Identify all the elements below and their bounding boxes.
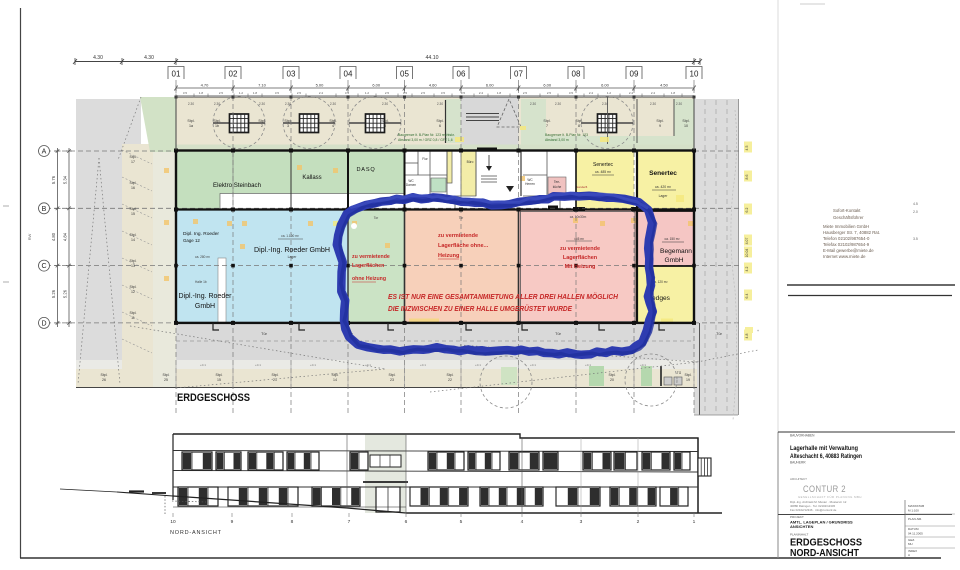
svg-text:1.2: 1.2 bbox=[239, 91, 244, 95]
svg-text:NORD-ANSICHT: NORD-ANSICHT bbox=[170, 530, 222, 536]
svg-text:+: + bbox=[757, 329, 759, 333]
svg-text:Lagerfläche ohne...: Lagerfläche ohne... bbox=[438, 243, 489, 249]
svg-text:03: 03 bbox=[287, 70, 296, 79]
svg-text:ca. 10x30m: ca. 10x30m bbox=[570, 215, 587, 219]
svg-text:Dipl.-Ing. Roeder GmbH: Dipl.-Ing. Roeder GmbH bbox=[254, 247, 330, 254]
svg-text:küche: küche bbox=[553, 185, 562, 189]
svg-text:2.30: 2.30 bbox=[330, 102, 336, 106]
svg-text:Begemann: Begemann bbox=[660, 248, 692, 255]
svg-text:Damen: Damen bbox=[406, 183, 417, 187]
svg-text:Stpl.: Stpl. bbox=[388, 373, 395, 377]
svg-text:TG: TG bbox=[677, 371, 682, 375]
svg-text:6: 6 bbox=[439, 124, 441, 128]
svg-text:4.30: 4.30 bbox=[93, 55, 103, 61]
svg-text:5: 5 bbox=[384, 124, 386, 128]
svg-text:26: 26 bbox=[102, 378, 106, 382]
svg-text:Senertec: Senertec bbox=[649, 170, 677, 177]
svg-text:BAUVORHABEN: BAUVORHABEN bbox=[790, 434, 815, 438]
svg-text:2.4: 2.4 bbox=[589, 91, 594, 95]
svg-text:10: 10 bbox=[170, 519, 176, 525]
svg-text:Stpl.: Stpl. bbox=[129, 233, 136, 237]
svg-text:ARCHITEKT: ARCHITEKT bbox=[790, 477, 807, 481]
svg-text:Lagerhalle mit Verwaltung: Lagerhalle mit Verwaltung bbox=[790, 445, 858, 452]
svg-text:7: 7 bbox=[546, 124, 548, 128]
svg-text:4.84: 4.84 bbox=[63, 232, 68, 241]
svg-text:BAUHERR: BAUHERR bbox=[790, 461, 806, 465]
svg-text:9: 9 bbox=[659, 124, 661, 128]
svg-text:5.26: 5.26 bbox=[51, 289, 56, 298]
svg-text:1b: 1b bbox=[215, 124, 219, 128]
svg-text:Senertec: Senertec bbox=[593, 162, 614, 168]
svg-text:Büro: Büro bbox=[467, 160, 474, 164]
svg-text:04.11.2005: 04.11.2005 bbox=[908, 532, 923, 536]
svg-text:C: C bbox=[41, 263, 46, 270]
svg-text:16: 16 bbox=[131, 186, 135, 190]
svg-text:Stpl.: Stpl. bbox=[129, 311, 136, 315]
svg-text:ES IST NUR EINE GESAMTANMIETUN: ES IST NUR EINE GESAMTANMIETUNG ALLER DR… bbox=[388, 292, 619, 301]
svg-text:Lager: Lager bbox=[288, 255, 298, 259]
svg-text:4.80: 4.80 bbox=[51, 232, 56, 241]
svg-text:Geschäftsführer: Geschäftsführer bbox=[833, 215, 864, 220]
svg-text:Tür: Tür bbox=[555, 332, 561, 336]
svg-text:Stpl.: Stpl. bbox=[129, 155, 136, 159]
svg-text:DASQ: DASQ bbox=[356, 167, 375, 173]
svg-text:+0.1: +0.1 bbox=[365, 363, 371, 367]
svg-text:6.4: 6.4 bbox=[745, 294, 749, 299]
svg-text:Stpl.: Stpl. bbox=[436, 119, 443, 123]
svg-text:GmbH: GmbH bbox=[195, 303, 215, 310]
svg-text:Telefax 02102/987654-9: Telefax 02102/987654-9 bbox=[823, 242, 870, 247]
svg-text:2.30: 2.30 bbox=[437, 102, 443, 106]
svg-text:A: A bbox=[908, 553, 910, 557]
svg-text:9: 9 bbox=[231, 519, 234, 525]
svg-text:3.5: 3.5 bbox=[441, 91, 446, 95]
svg-text:3.5: 3.5 bbox=[345, 91, 350, 95]
svg-text:2.30: 2.30 bbox=[650, 102, 656, 106]
svg-text:06: 06 bbox=[457, 70, 466, 79]
svg-text:3: 3 bbox=[287, 124, 289, 128]
svg-text:2.4: 2.4 bbox=[479, 91, 484, 95]
svg-text:5.00: 5.00 bbox=[316, 83, 325, 88]
svg-text:23: 23 bbox=[390, 378, 394, 382]
svg-text:5.34: 5.34 bbox=[63, 175, 68, 184]
svg-text:2.5: 2.5 bbox=[421, 91, 426, 95]
svg-text:6.00: 6.00 bbox=[543, 83, 552, 88]
svg-text:14: 14 bbox=[131, 238, 135, 242]
svg-text:2.0: 2.0 bbox=[913, 210, 918, 214]
svg-text:PLANINHALT: PLANINHALT bbox=[790, 533, 808, 537]
svg-text:Stpl.: Stpl. bbox=[187, 119, 194, 123]
svg-text:+0.1: +0.1 bbox=[255, 363, 261, 367]
svg-text:2.4: 2.4 bbox=[319, 91, 324, 95]
svg-text:8: 8 bbox=[291, 519, 294, 525]
svg-text:4: 4 bbox=[332, 124, 334, 128]
svg-text:Baugrenze lt. B-Plan Nr. 123 r: Baugrenze lt. B-Plan Nr. 123 rechtskr. bbox=[398, 133, 455, 137]
svg-text:6: 6 bbox=[405, 519, 408, 525]
svg-text:4.50: 4.50 bbox=[660, 83, 669, 88]
svg-text:+0.1: +0.1 bbox=[640, 363, 646, 367]
svg-text:ca. 420 m²: ca. 420 m² bbox=[655, 185, 672, 189]
svg-text:1.2: 1.2 bbox=[607, 91, 612, 95]
svg-text:3.5: 3.5 bbox=[913, 237, 918, 241]
svg-text:Stpl.: Stpl. bbox=[100, 373, 107, 377]
svg-text:GESELLSCHAFT FÜR PLANUNG MBH: GESELLSCHAFT FÜR PLANUNG MBH bbox=[798, 495, 862, 499]
svg-text:DATUM: DATUM bbox=[908, 527, 919, 531]
svg-text:Stpl.: Stpl. bbox=[129, 181, 136, 185]
svg-text:+0.1: +0.1 bbox=[530, 363, 536, 367]
svg-text:14: 14 bbox=[333, 378, 337, 382]
svg-text:5.26: 5.26 bbox=[63, 289, 68, 298]
svg-text:GmbH: GmbH bbox=[664, 257, 683, 264]
svg-text:Stpl.: Stpl. bbox=[682, 119, 689, 123]
svg-text:12: 12 bbox=[131, 290, 135, 294]
svg-text:2.4: 2.4 bbox=[651, 91, 656, 95]
svg-text:8.6: 8.6 bbox=[745, 175, 749, 180]
svg-text:3.5: 3.5 bbox=[183, 91, 188, 95]
svg-text:B: B bbox=[42, 206, 47, 213]
svg-text:1.2: 1.2 bbox=[365, 91, 370, 95]
svg-text:ERDGESCHOSS: ERDGESCHOSS bbox=[790, 538, 862, 549]
svg-text:Tür: Tür bbox=[716, 332, 722, 336]
svg-text:Flur: Flur bbox=[422, 157, 428, 161]
svg-text:Dipl.-Ing. Roeder: Dipl.-Ing. Roeder bbox=[179, 293, 233, 300]
svg-text:6.00: 6.00 bbox=[486, 83, 495, 88]
svg-text:E-Mail gewerbe@miete.de: E-Mail gewerbe@miete.de bbox=[823, 248, 874, 253]
svg-text:4.30: 4.30 bbox=[144, 55, 154, 61]
svg-text:6.00: 6.00 bbox=[372, 83, 381, 88]
svg-text:2.30: 2.30 bbox=[285, 102, 291, 106]
svg-text:PLAN-NR.: PLAN-NR. bbox=[908, 517, 922, 521]
svg-text:4: 4 bbox=[521, 519, 524, 525]
svg-text:1: 1 bbox=[693, 519, 696, 525]
svg-text:ca. 485 m²: ca. 485 m² bbox=[595, 170, 612, 174]
svg-text:17: 17 bbox=[131, 160, 135, 164]
svg-text:1a: 1a bbox=[189, 124, 193, 128]
svg-text:ERDGESCHOSS: ERDGESCHOSS bbox=[177, 392, 250, 404]
svg-text:ca. 280 m²: ca. 280 m² bbox=[195, 255, 210, 259]
svg-text:Stpl.: Stpl. bbox=[271, 373, 278, 377]
svg-text:1.8: 1.8 bbox=[253, 91, 258, 95]
svg-text:+0.1: +0.1 bbox=[585, 363, 591, 367]
svg-text:Stpl.: Stpl. bbox=[129, 285, 136, 289]
svg-text:Abstand 3,00 m / GRZ 0,8 / GFZ: Abstand 3,00 m / GRZ 0,8 / GFZ 1,6 bbox=[398, 138, 453, 142]
svg-text:2.5: 2.5 bbox=[547, 91, 552, 95]
svg-text:5: 5 bbox=[460, 519, 463, 525]
svg-text:15: 15 bbox=[131, 212, 135, 216]
svg-text:7: 7 bbox=[348, 519, 351, 525]
svg-text:Herren: Herren bbox=[525, 182, 535, 186]
svg-text:10.04: 10.04 bbox=[745, 249, 749, 258]
svg-text:4.5: 4.5 bbox=[913, 202, 918, 206]
svg-text:4.5: 4.5 bbox=[745, 146, 749, 151]
svg-text:ca. 1.100 m²: ca. 1.100 m² bbox=[281, 234, 299, 238]
svg-text:Stpl.: Stpl. bbox=[213, 119, 220, 123]
svg-text:Dipl. Ing. Roeder: Dipl. Ing. Roeder bbox=[183, 231, 219, 237]
svg-text:zu vermietende: zu vermietende bbox=[352, 254, 390, 260]
svg-text:Stpl.: Stpl. bbox=[215, 373, 222, 377]
svg-text:zu vermietende: zu vermietende bbox=[560, 246, 600, 252]
svg-text:Lagerflächen: Lagerflächen bbox=[563, 255, 598, 261]
svg-text:Tee-: Tee- bbox=[554, 180, 560, 184]
svg-text:10: 10 bbox=[690, 70, 699, 79]
svg-text:Stpl.: Stpl. bbox=[684, 373, 691, 377]
svg-text:Kallass: Kallass bbox=[302, 175, 321, 181]
svg-text:+0.1: +0.1 bbox=[475, 363, 481, 367]
svg-text:edges: edges bbox=[652, 295, 671, 302]
svg-text:Stpl.: Stpl. bbox=[381, 119, 388, 123]
svg-text:04: 04 bbox=[344, 70, 353, 79]
svg-text:+0.1: +0.1 bbox=[310, 363, 316, 367]
svg-text:MU: MU bbox=[908, 542, 913, 546]
svg-text:2.30: 2.30 bbox=[382, 102, 388, 106]
svg-text:25: 25 bbox=[164, 378, 168, 382]
svg-text:+0.1: +0.1 bbox=[420, 363, 426, 367]
svg-text:Stpl.: Stpl. bbox=[608, 373, 615, 377]
svg-text:2.5: 2.5 bbox=[297, 91, 302, 95]
svg-text:2.30: 2.30 bbox=[676, 102, 682, 106]
svg-text:Elektro Steinbach: Elektro Steinbach bbox=[213, 182, 261, 189]
svg-text:Alteschacht 6, 40883 Ratingen: Alteschacht 6, 40883 Ratingen bbox=[790, 453, 862, 460]
svg-text:05: 05 bbox=[400, 70, 409, 79]
svg-text:ohne Heizung: ohne Heizung bbox=[352, 276, 386, 282]
svg-text:CONTUR 2: CONTUR 2 bbox=[803, 484, 846, 494]
svg-text:Stpl.: Stpl. bbox=[258, 119, 265, 123]
svg-text:Lagerflächen: Lagerflächen bbox=[352, 263, 384, 269]
svg-text:10: 10 bbox=[684, 124, 688, 128]
svg-text:2.30: 2.30 bbox=[530, 102, 536, 106]
svg-text:09: 09 bbox=[630, 70, 639, 79]
svg-text:2: 2 bbox=[637, 519, 640, 525]
svg-text:Stpl.: Stpl. bbox=[656, 119, 663, 123]
svg-text:08: 08 bbox=[572, 70, 581, 79]
svg-text:Stpl.: Stpl. bbox=[575, 119, 582, 123]
svg-text:NORD-ANSICHT: NORD-ANSICHT bbox=[790, 548, 859, 559]
svg-text:4.2: 4.2 bbox=[745, 267, 749, 272]
svg-text:02: 02 bbox=[229, 70, 238, 79]
svg-text:11: 11 bbox=[131, 316, 135, 320]
svg-text:Sofort-Kontakt: Sofort-Kontakt bbox=[833, 208, 861, 213]
svg-text:8: 8 bbox=[578, 124, 580, 128]
svg-text:2.30: 2.30 bbox=[259, 102, 265, 106]
svg-text:M 1:100: M 1:100 bbox=[908, 509, 919, 513]
svg-text:3: 3 bbox=[580, 519, 583, 525]
svg-text:3.5: 3.5 bbox=[403, 91, 408, 95]
svg-text:Halle 1b: Halle 1b bbox=[195, 280, 207, 284]
svg-text:Lager: Lager bbox=[659, 194, 669, 198]
svg-text:2: 2 bbox=[261, 124, 263, 128]
svg-text:13: 13 bbox=[131, 264, 135, 268]
svg-text:2.30: 2.30 bbox=[555, 102, 561, 106]
svg-text:MASSSTAB: MASSSTAB bbox=[908, 504, 924, 508]
svg-text:RW: RW bbox=[27, 233, 32, 240]
svg-text:15: 15 bbox=[217, 378, 221, 382]
svg-text:ANSICHTEN: ANSICHTEN bbox=[790, 524, 813, 529]
svg-text:1.8: 1.8 bbox=[497, 91, 502, 95]
svg-text:4.70: 4.70 bbox=[201, 83, 210, 88]
svg-text:Fax 02102/12346 · info@contur2: Fax 02102/12346 · info@contur2.de bbox=[790, 508, 837, 512]
svg-text:2.30: 2.30 bbox=[188, 102, 194, 106]
svg-text:Telefon 02102/987654-0: Telefon 02102/987654-0 bbox=[823, 236, 870, 241]
svg-text:20: 20 bbox=[610, 378, 614, 382]
svg-text:2.30: 2.30 bbox=[602, 102, 608, 106]
svg-text:D: D bbox=[41, 320, 46, 327]
svg-text:01: 01 bbox=[172, 70, 181, 79]
svg-text:Gage 12: Gage 12 bbox=[183, 238, 200, 243]
svg-text:44.10: 44.10 bbox=[426, 55, 439, 61]
svg-text:1.8: 1.8 bbox=[199, 91, 204, 95]
svg-text:4.60: 4.60 bbox=[429, 83, 438, 88]
svg-text:PROJEKT: PROJEKT bbox=[790, 515, 804, 519]
svg-text:07: 07 bbox=[514, 70, 523, 79]
svg-text:Stpl.: Stpl. bbox=[162, 373, 169, 377]
svg-text:22: 22 bbox=[448, 378, 452, 382]
svg-text:+0.1: +0.1 bbox=[200, 363, 206, 367]
svg-text:Internet www.miete.de: Internet www.miete.de bbox=[823, 254, 866, 259]
svg-text:1.8: 1.8 bbox=[671, 91, 676, 95]
svg-text:6.00: 6.00 bbox=[601, 83, 610, 88]
svg-text:Stpl.: Stpl. bbox=[446, 373, 453, 377]
svg-text:465 m²: 465 m² bbox=[574, 237, 584, 241]
svg-text:5.76: 5.76 bbox=[51, 175, 56, 184]
svg-text:Stpl.: Stpl. bbox=[329, 119, 336, 123]
svg-text:3.5: 3.5 bbox=[461, 91, 466, 95]
svg-text:Stpl.: Stpl. bbox=[543, 119, 550, 123]
svg-text:Heizung: Heizung bbox=[438, 253, 459, 259]
svg-text:Sonderfl.: Sonderfl. bbox=[576, 185, 588, 189]
svg-text:7.10: 7.10 bbox=[258, 83, 267, 88]
svg-text:DIE INZWISCHEN ZU EINER HALLE: DIE INZWISCHEN ZU EINER HALLE UMGERÜSTET… bbox=[388, 304, 572, 313]
svg-text:19: 19 bbox=[686, 378, 690, 382]
svg-text:Abstand 3,00 m: Abstand 3,00 m bbox=[545, 138, 569, 142]
svg-text:6.2: 6.2 bbox=[745, 208, 749, 213]
svg-text:2.5: 2.5 bbox=[523, 91, 528, 95]
svg-text:A: A bbox=[42, 149, 47, 156]
svg-text:Stpl.: Stpl. bbox=[284, 119, 291, 123]
svg-text:Stpl.: Stpl. bbox=[129, 207, 136, 211]
svg-text:2.5: 2.5 bbox=[385, 91, 390, 95]
svg-text:4.07: 4.07 bbox=[745, 238, 749, 245]
svg-text:3.5: 3.5 bbox=[275, 91, 280, 95]
svg-text:Stpl.: Stpl. bbox=[129, 259, 136, 263]
svg-text:4.8: 4.8 bbox=[745, 334, 749, 339]
svg-text:2.30: 2.30 bbox=[214, 102, 220, 106]
svg-text:Hausberger Str. 7, 40882 Rat.: Hausberger Str. 7, 40882 Rat. bbox=[823, 230, 880, 235]
svg-text:2.5: 2.5 bbox=[219, 91, 224, 95]
svg-text:2.4: 2.4 bbox=[629, 91, 634, 95]
svg-text:Baugrenze lt. B-Plan Nr. 123: Baugrenze lt. B-Plan Nr. 123 bbox=[545, 133, 588, 137]
svg-text:3.5: 3.5 bbox=[569, 91, 574, 95]
svg-text:Miete Immobilien GmbH: Miete Immobilien GmbH bbox=[823, 224, 869, 229]
svg-text:Tür: Tür bbox=[261, 332, 267, 336]
svg-text:ca. 150 m²: ca. 150 m² bbox=[664, 237, 679, 241]
svg-text:zu vermietende: zu vermietende bbox=[438, 233, 478, 239]
svg-text:Mit Heizung: Mit Heizung bbox=[565, 264, 596, 270]
